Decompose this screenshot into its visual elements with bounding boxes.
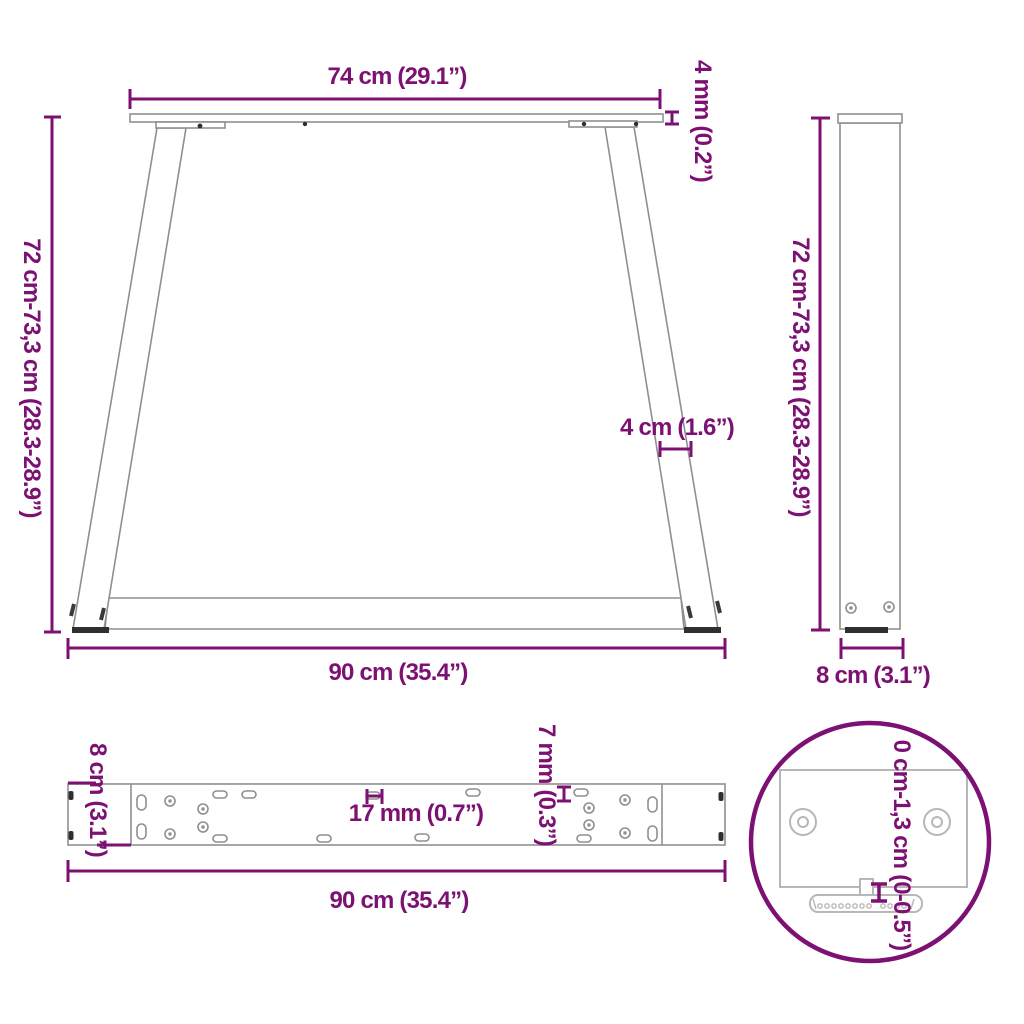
front-view-drawing — [71, 114, 721, 633]
front-bottom-width-label: 90 cm (35.4”) — [328, 661, 467, 685]
bar-slot-length-label: 17 mm (0.7”) — [349, 802, 483, 826]
foot-detail-drawing — [751, 723, 989, 961]
bar-hole-width-label: 7 mm (0.3”) — [534, 724, 558, 846]
side-view-drawing — [838, 114, 902, 633]
technical-drawing-canvas — [0, 0, 1024, 1024]
bar-length-label: 90 cm (35.4”) — [329, 889, 468, 913]
side-depth-label: 8 cm (3.1”) — [816, 664, 930, 688]
dimension-diagram: 74 cm (29.1”) 4 mm (0.2”) 72 cm-73,3 cm … — [0, 0, 1024, 1024]
front-leg-width-label: 4 cm (1.6”) — [620, 416, 734, 440]
front-plate-thickness-label: 4 mm (0.2”) — [690, 60, 714, 182]
side-height-label: 72 cm-73,3 cm (28.3-28.9”) — [788, 237, 812, 516]
front-height-label: 72 cm-73,3 cm (28.3-28.9”) — [19, 238, 43, 517]
foot-adjustable-range-label: 0 cm-1,3 cm (0-0.5”) — [889, 740, 913, 951]
bar-depth-label: 8 cm (3.1”) — [85, 743, 109, 857]
front-top-width-label: 74 cm (29.1”) — [327, 65, 466, 89]
